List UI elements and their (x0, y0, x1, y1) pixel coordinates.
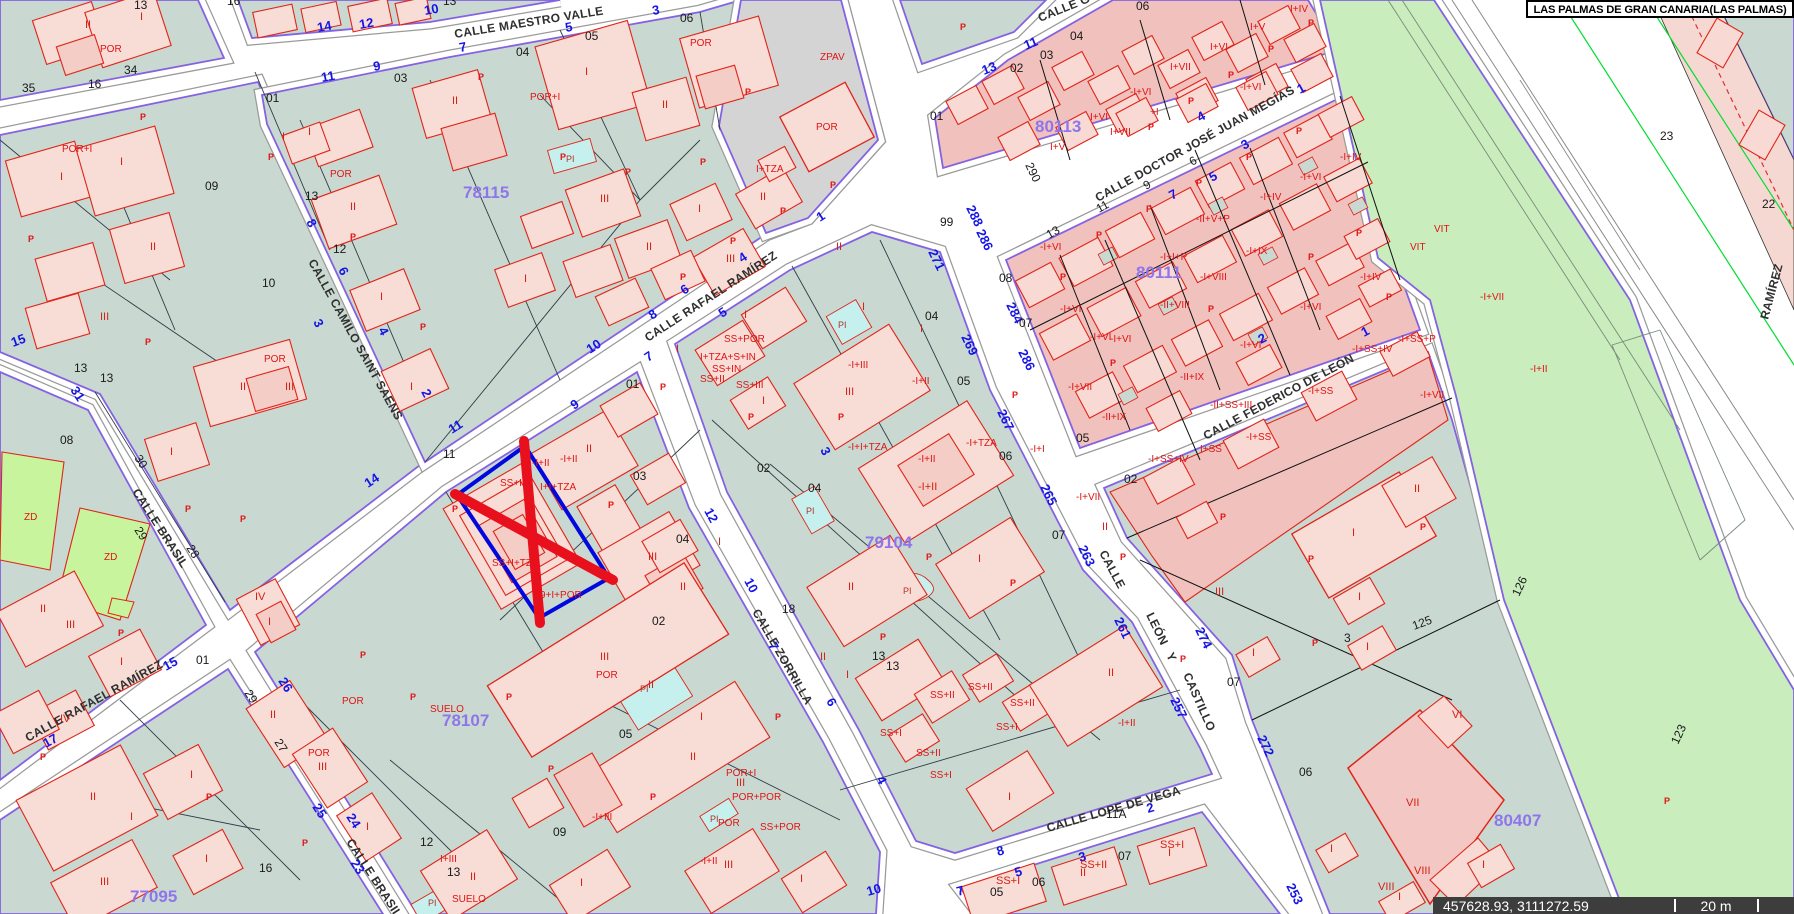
svg-text:IV: IV (255, 591, 266, 603)
svg-text:P: P (185, 504, 191, 514)
svg-text:-I+III: -I+III (848, 360, 868, 371)
svg-text:P: P (1308, 18, 1314, 28)
svg-text:I+IV: I+IV (1290, 4, 1308, 15)
svg-text:I: I (170, 446, 173, 458)
svg-text:IV: IV (60, 713, 71, 725)
svg-text:II: II (350, 201, 356, 213)
svg-text:P: P (420, 322, 426, 332)
svg-text:79104: 79104 (865, 533, 913, 552)
svg-text:II: II (270, 709, 276, 721)
svg-text:04: 04 (1070, 29, 1084, 43)
svg-text:P: P (1110, 358, 1116, 368)
svg-text:04: 04 (676, 532, 690, 546)
svg-text:II: II (646, 241, 652, 253)
svg-text:P: P (1148, 122, 1154, 132)
svg-text:I: I (1398, 891, 1401, 903)
svg-text:-I+SS: -I+SS (1308, 386, 1334, 397)
svg-text:II: II (240, 381, 246, 393)
svg-text:II: II (848, 581, 854, 593)
svg-text:12: 12 (358, 15, 375, 32)
svg-text:LAS PALMAS DE GRAN CANARIA(LAS: LAS PALMAS DE GRAN CANARIA(LAS PALMAS) (1533, 4, 1786, 16)
svg-text:PI: PI (566, 154, 575, 164)
svg-text:SS+I: SS+I (996, 722, 1018, 733)
svg-text:13: 13 (443, 0, 457, 8)
svg-text:13: 13 (74, 361, 88, 375)
svg-text:P: P (775, 712, 781, 722)
svg-text:457628.93, 3111272.59: 457628.93, 3111272.59 (1443, 898, 1589, 914)
svg-text:POR: POR (690, 38, 712, 49)
svg-text:07: 07 (1052, 528, 1066, 542)
svg-text:-I+IX: -I+IX (1246, 246, 1268, 257)
svg-text:POR: POR (330, 169, 352, 180)
svg-text:P: P (240, 514, 246, 524)
svg-text:01: 01 (930, 109, 944, 123)
svg-text:III: III (318, 761, 327, 773)
svg-text:80113: 80113 (1035, 117, 1081, 136)
svg-text:-I+II: -I+II (1118, 718, 1136, 729)
svg-text:+I: +I (1150, 107, 1159, 118)
svg-text:P: P (680, 272, 686, 282)
svg-text:03: 03 (394, 71, 408, 85)
svg-text:P: P (748, 412, 754, 422)
svg-text:II: II (85, 19, 91, 31)
svg-text:P: P (650, 792, 656, 802)
svg-text:I: I (698, 203, 701, 215)
svg-text:P: P (268, 152, 274, 162)
svg-text:POR: POR (264, 354, 286, 365)
svg-text:-I+TZA: -I+TZA (966, 438, 997, 449)
svg-text:P: P (350, 232, 356, 242)
svg-text:-I+VII: -I+VII (1420, 390, 1444, 401)
svg-text:VII: VII (1406, 797, 1419, 809)
svg-text:P: P (1096, 230, 1102, 240)
svg-text:-I+I+P: -I+I+P (1160, 252, 1188, 263)
svg-text:I: I (190, 769, 193, 781)
svg-text:-I+VI: -I+VI (1040, 242, 1061, 253)
svg-text:P: P (608, 500, 614, 510)
svg-text:-I+SS: -I+SS (1246, 432, 1272, 443)
svg-text:35: 35 (22, 81, 36, 95)
svg-text:I: I (120, 156, 123, 168)
svg-text:II: II (662, 99, 668, 111)
svg-text:III: III (600, 193, 609, 205)
svg-text:-II+IX: -II+IX (1102, 412, 1127, 423)
svg-text:SS+I: SS+I (880, 728, 902, 739)
svg-text:SS+II: SS+II (700, 374, 725, 385)
svg-text:P: P (1228, 70, 1234, 80)
svg-text:I: I (978, 553, 981, 565)
svg-text:34: 34 (124, 63, 138, 77)
svg-text:P: P (560, 152, 566, 162)
svg-text:P: P (1188, 96, 1194, 106)
svg-text:I: I (1366, 641, 1369, 653)
svg-text:05: 05 (585, 29, 599, 43)
svg-text:VIII: VIII (1378, 881, 1395, 893)
svg-text:02: 02 (757, 461, 771, 475)
svg-text:06: 06 (999, 449, 1013, 463)
svg-text:-I+II: -I+II (918, 454, 936, 465)
svg-text:P: P (302, 838, 308, 848)
svg-text:I+V: I+V (1250, 22, 1266, 33)
svg-text:-II+VIII: -II+VIII (1160, 300, 1190, 311)
svg-text:I: I (1358, 591, 1361, 603)
svg-text:POR: POR (718, 818, 740, 829)
svg-text:P: P (1120, 552, 1126, 562)
svg-text:I+VII: I+VII (1170, 62, 1191, 73)
svg-text:III: III (100, 311, 109, 323)
svg-text:P: P (452, 504, 458, 514)
svg-text:-I+II: -I+II (918, 481, 937, 493)
svg-text:-I+II: -I+II (700, 856, 718, 867)
svg-text:12: 12 (333, 242, 347, 256)
svg-text:SS+POR: SS+POR (760, 822, 801, 833)
svg-text:23: 23 (1660, 129, 1674, 143)
svg-text:POR: POR (342, 696, 364, 707)
svg-text:I: I (1008, 791, 1011, 803)
svg-text:04: 04 (808, 481, 822, 495)
svg-text:ZD: ZD (104, 552, 117, 563)
svg-text:SS+I: SS+I (996, 875, 1020, 887)
svg-text:P: P (1246, 152, 1252, 162)
svg-text:P: P (410, 692, 416, 702)
svg-text:16: 16 (259, 861, 273, 875)
svg-text:I: I (676, 343, 679, 355)
svg-text:-I+IV: -I+IV (1360, 272, 1382, 283)
svg-text:P: P (118, 628, 124, 638)
svg-text:16: 16 (227, 0, 241, 8)
svg-text:07: 07 (1118, 849, 1132, 863)
svg-text:III: III (845, 386, 854, 398)
svg-text:III: III (600, 651, 609, 663)
svg-text:09: 09 (205, 179, 219, 193)
svg-text:-I+VI: -I+VI (1300, 302, 1321, 313)
svg-text:P: P (548, 764, 554, 774)
svg-text:I: I (205, 853, 208, 865)
svg-text:I: I (862, 301, 865, 313)
svg-text:I: I (700, 711, 703, 723)
svg-text:-I+SS+P: -I+SS+P (1398, 334, 1436, 345)
svg-text:08: 08 (999, 271, 1013, 285)
svg-text:SS+II: SS+II (930, 690, 955, 701)
svg-text:P: P (1012, 390, 1018, 400)
svg-text:13: 13 (305, 189, 319, 203)
svg-text:12: 12 (420, 835, 434, 849)
svg-text:11: 11 (320, 68, 336, 85)
svg-text:I: I (718, 536, 721, 548)
svg-text:VIT: VIT (1410, 242, 1426, 253)
svg-text:SS+II: SS+II (1080, 859, 1107, 871)
svg-text:80407: 80407 (1494, 811, 1541, 830)
svg-text:I: I (1482, 859, 1485, 871)
svg-text:80111: 80111 (1136, 263, 1181, 282)
svg-text:P: P (1146, 204, 1152, 214)
svg-text:PI: PI (640, 684, 649, 694)
svg-text:I: I (282, 131, 285, 143)
svg-text:I+VII: I+VII (1110, 127, 1131, 138)
svg-text:I+VI: I+VI (1090, 112, 1108, 123)
svg-text:3: 3 (1344, 631, 1351, 645)
svg-text:II: II (150, 241, 156, 253)
svg-text:P: P (660, 382, 666, 392)
svg-text:I+I+TZA: I+I+TZA (540, 482, 576, 493)
svg-text:P: P (1308, 554, 1314, 564)
svg-text:P: P (625, 167, 631, 177)
svg-text:P: P (1196, 178, 1202, 188)
svg-text:P: P (1308, 252, 1314, 262)
svg-text:01: 01 (266, 91, 280, 105)
svg-text:99: 99 (940, 215, 954, 229)
svg-text:POR: POR (308, 748, 330, 759)
svg-text:03: 03 (1040, 48, 1054, 62)
svg-text:-I+III: -I+III (592, 812, 612, 823)
svg-text:-II+V+P: -II+V+P (1196, 214, 1230, 225)
svg-text:PI: PI (428, 898, 437, 908)
svg-text:POR: POR (816, 122, 838, 133)
svg-text:POR: POR (596, 670, 618, 681)
svg-text:-I+VI: -I+VI (1240, 340, 1261, 351)
svg-text:02: 02 (1124, 472, 1138, 486)
svg-text:22: 22 (1762, 197, 1776, 211)
svg-text:I: I (800, 873, 803, 885)
svg-text:P: P (28, 234, 34, 244)
svg-text:I: I (140, 11, 143, 23)
svg-text:I: I (380, 291, 383, 303)
svg-text:11: 11 (443, 447, 456, 461)
svg-text:P: P (960, 22, 966, 32)
svg-text:I: I (762, 395, 765, 407)
svg-text:PI: PI (806, 506, 815, 516)
svg-text:-I+II: -I+II (1530, 364, 1548, 375)
svg-text:P: P (360, 650, 366, 660)
svg-text:III: III (285, 381, 294, 393)
svg-text:10: 10 (423, 1, 440, 18)
svg-text:P: P (1208, 304, 1214, 314)
svg-text:ZPAV: ZPAV (820, 52, 845, 63)
svg-text:-I+IV: -I+IV (1340, 152, 1362, 163)
svg-text:-I+IV: -I+IV (1260, 192, 1282, 203)
svg-text:-I+I+TZA: -I+I+TZA (848, 442, 888, 453)
svg-text:05: 05 (957, 374, 971, 388)
svg-text:-I+VIII: -I+VIII (1200, 272, 1227, 283)
svg-text:I: I (1352, 527, 1355, 539)
svg-text:II: II (690, 751, 696, 763)
svg-text:P: P (1664, 796, 1670, 806)
svg-text:I: I (846, 669, 849, 681)
svg-text:-I+VII: -I+VII (1480, 292, 1504, 303)
svg-text:III: III (736, 777, 745, 789)
svg-text:13: 13 (872, 649, 886, 663)
svg-text:04: 04 (516, 45, 530, 59)
svg-text:SS+I+TZ: SS+I+TZ (492, 558, 532, 569)
svg-text:SS+I: SS+I (930, 770, 952, 781)
svg-text:II: II (1102, 521, 1108, 533)
svg-text:VIII: VIII (1414, 865, 1431, 877)
svg-text:06: 06 (680, 11, 694, 25)
svg-text:P: P (1268, 44, 1274, 54)
svg-text:06: 06 (1299, 765, 1313, 779)
svg-text:I+III: I+III (440, 854, 457, 865)
svg-text:04: 04 (925, 309, 939, 323)
svg-text:II: II (1414, 483, 1420, 495)
svg-text:P: P (1420, 522, 1426, 532)
svg-text:I+VI: I+VI (1210, 42, 1228, 53)
svg-text:02: 02 (652, 614, 666, 628)
svg-text:P: P (730, 236, 736, 246)
svg-text:I: I (410, 381, 413, 393)
svg-text:I+V: I+V (1050, 142, 1066, 153)
svg-text:13: 13 (100, 371, 114, 385)
svg-text:III: III (724, 859, 733, 871)
svg-text:SS+I: SS+I (1160, 839, 1184, 851)
svg-text:PI: PI (838, 320, 847, 330)
svg-text:05: 05 (619, 727, 633, 741)
svg-text:-I+VII: -I+VII (1076, 492, 1100, 503)
svg-text:SS+II: SS+II (916, 748, 941, 759)
svg-text:II: II (820, 651, 826, 663)
svg-text:III: III (100, 876, 109, 888)
svg-text:SS+II: SS+II (1010, 698, 1035, 709)
svg-text:P: P (145, 337, 151, 347)
svg-text:VI: VI (1452, 709, 1462, 721)
svg-text:05: 05 (990, 885, 1004, 899)
svg-text:P: P (838, 412, 844, 422)
svg-text:II: II (1108, 667, 1114, 679)
svg-text:18: 18 (782, 602, 796, 616)
svg-text:P: P (40, 752, 46, 762)
svg-text:P: P (140, 112, 146, 122)
svg-text:III: III (726, 253, 735, 265)
svg-text:01: 01 (626, 377, 640, 391)
svg-text:II: II (90, 791, 96, 803)
svg-text:POR+POR: POR+POR (732, 792, 781, 803)
svg-text:07: 07 (1019, 316, 1033, 330)
svg-text:77095: 77095 (130, 887, 177, 906)
svg-text:-I+SS+IV: -I+SS+IV (1148, 454, 1189, 465)
svg-text:I: I (524, 273, 527, 285)
svg-text:P: P (1180, 654, 1186, 664)
svg-text:-I+II: -I+II (560, 454, 578, 465)
svg-text:01: 01 (196, 653, 210, 667)
svg-text:-II+SS+III: -II+SS+III (1210, 400, 1252, 411)
svg-text:-I+VI: -I+VI (1130, 87, 1151, 98)
svg-text:05: 05 (1076, 431, 1090, 445)
svg-text:P: P (1296, 126, 1302, 136)
svg-text:P: P (1386, 292, 1392, 302)
svg-text:I: I (366, 821, 369, 833)
svg-text:I: I (1252, 647, 1255, 659)
svg-text:P: P (745, 87, 751, 97)
svg-text:-I+VII: -I+VII (1068, 382, 1092, 393)
svg-text:POR+I: POR+I (530, 92, 560, 103)
svg-text:-I+SS+IV: -I+SS+IV (1352, 344, 1393, 355)
svg-text:I: I (744, 309, 747, 321)
svg-text:-I+VI: -I+VI (1060, 304, 1081, 315)
svg-text:PI: PI (903, 586, 912, 596)
svg-text:07: 07 (1227, 675, 1241, 689)
svg-text:I: I (920, 323, 923, 335)
svg-text:SS+I: SS+I (500, 478, 522, 489)
svg-text:13: 13 (886, 659, 900, 673)
svg-text:16: 16 (88, 77, 102, 91)
svg-text:09: 09 (553, 825, 567, 839)
svg-text:9+I+POR: 9+I+POR (540, 590, 582, 601)
svg-text:I+TZA+S+IN: I+TZA+S+IN (700, 352, 756, 363)
svg-text:PI: PI (710, 814, 719, 824)
svg-text:SUELO: SUELO (452, 894, 486, 905)
svg-text:II: II (586, 443, 592, 455)
svg-text:P: P (700, 157, 706, 167)
svg-text:P: P (880, 632, 886, 642)
svg-text:P: P (1220, 512, 1226, 522)
svg-text:-II+IX: -II+IX (1180, 372, 1205, 383)
svg-text:P: P (506, 692, 512, 702)
svg-text:06: 06 (1032, 875, 1046, 889)
svg-text:POR: POR (100, 44, 122, 55)
svg-text:-I+II: -I+II (912, 376, 930, 387)
svg-text:III: III (66, 619, 75, 631)
svg-text:I: I (580, 877, 583, 889)
svg-text:VIT: VIT (1434, 224, 1450, 235)
svg-text:I: I (1330, 843, 1333, 855)
svg-text:-I+VI: -I+VI (1240, 82, 1261, 93)
svg-text:P: P (830, 180, 836, 190)
svg-text:II: II (836, 241, 842, 253)
svg-text:ZD: ZD (24, 512, 37, 523)
svg-text:20 m: 20 m (1700, 898, 1731, 914)
svg-text:10: 10 (262, 276, 276, 290)
svg-text:I: I (268, 616, 271, 628)
svg-text:SS+POR: SS+POR (724, 334, 765, 345)
svg-text:-I+VI: -I+VI (1090, 332, 1111, 343)
svg-text:II: II (452, 95, 458, 107)
svg-text:I+SS: I+SS (1200, 444, 1222, 455)
svg-text:-I+II: -I+II (532, 458, 550, 469)
svg-text:I+TZA: I+TZA (756, 164, 784, 175)
svg-text:P: P (1060, 272, 1066, 282)
svg-text:11A: 11A (1106, 807, 1126, 821)
svg-text:06: 06 (1136, 0, 1150, 13)
svg-text:08: 08 (60, 433, 74, 447)
svg-text:I: I (60, 171, 63, 183)
svg-text:P: P (478, 72, 484, 82)
svg-text:P: P (1356, 228, 1362, 238)
svg-text:02: 02 (1010, 61, 1024, 75)
svg-text:I: I (130, 811, 133, 823)
svg-text:SUELO: SUELO (430, 704, 464, 715)
svg-text:-I+I: -I+I (1030, 444, 1045, 455)
svg-text:I: I (585, 66, 588, 78)
svg-text:P: P (206, 792, 212, 802)
svg-text:P: P (1010, 578, 1016, 588)
svg-text:P: P (926, 552, 932, 562)
svg-text:POR+I: POR+I (62, 144, 92, 155)
svg-text:III: III (648, 551, 657, 563)
svg-text:-I+VI: -I+VI (1110, 334, 1131, 345)
svg-text:II: II (760, 191, 766, 203)
svg-text:II: II (40, 603, 46, 615)
svg-text:II: II (648, 679, 654, 691)
svg-text:SS+II: SS+II (968, 682, 993, 693)
svg-text:P: P (780, 206, 786, 216)
svg-text:-I+VI: -I+VI (1300, 172, 1321, 183)
svg-text:P: P (1312, 638, 1318, 648)
svg-text:II: II (470, 871, 476, 883)
svg-text:II: II (680, 581, 686, 593)
svg-text:SS+III: SS+III (736, 380, 764, 391)
svg-text:78115: 78115 (463, 183, 509, 202)
svg-text:13: 13 (447, 865, 461, 879)
svg-text:III: III (1215, 586, 1224, 598)
